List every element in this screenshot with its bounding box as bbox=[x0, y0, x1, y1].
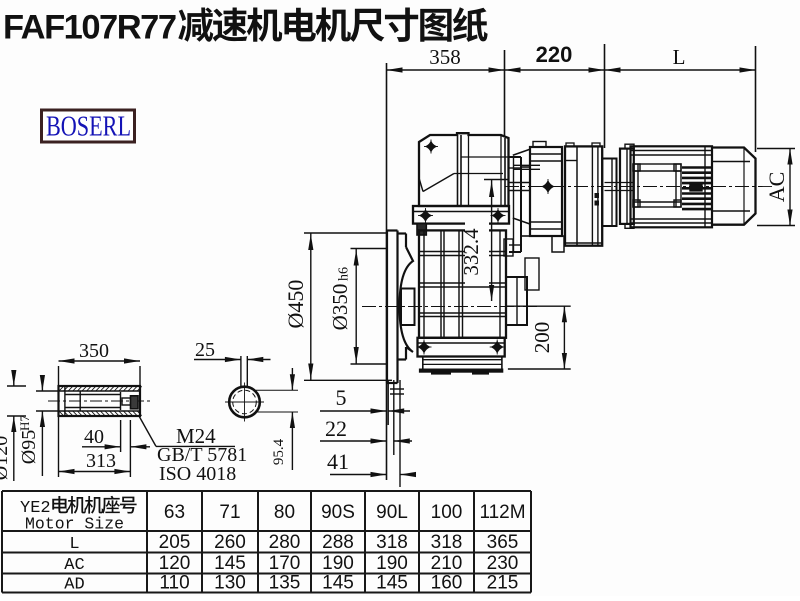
svg-text:358: 358 bbox=[429, 45, 461, 69]
svg-text:22: 22 bbox=[325, 416, 347, 441]
svg-text:90S: 90S bbox=[321, 502, 355, 523]
svg-text:110: 110 bbox=[159, 573, 189, 594]
svg-text:190: 190 bbox=[376, 553, 408, 574]
svg-text:AD: AD bbox=[64, 576, 84, 595]
svg-text:H7: H7 bbox=[17, 415, 32, 431]
svg-text:145: 145 bbox=[214, 553, 246, 574]
svg-text:135: 135 bbox=[269, 573, 301, 594]
svg-text:145: 145 bbox=[322, 573, 354, 594]
svg-text:130: 130 bbox=[214, 573, 246, 594]
svg-text:95.4: 95.4 bbox=[271, 438, 287, 465]
svg-text:AC: AC bbox=[64, 556, 84, 575]
svg-text:80: 80 bbox=[274, 502, 295, 523]
svg-text:220: 220 bbox=[536, 42, 573, 67]
svg-text:Ø350: Ø350 bbox=[328, 284, 352, 331]
svg-text:L: L bbox=[673, 45, 686, 69]
svg-text:332.4: 332.4 bbox=[459, 228, 483, 276]
svg-text:280: 280 bbox=[269, 532, 301, 553]
svg-text:200: 200 bbox=[530, 322, 554, 354]
svg-text:170: 170 bbox=[269, 553, 301, 574]
svg-text:145: 145 bbox=[376, 573, 408, 594]
svg-text:318: 318 bbox=[431, 532, 463, 553]
svg-text:318: 318 bbox=[376, 532, 408, 553]
svg-text:260: 260 bbox=[214, 532, 246, 553]
svg-text:5: 5 bbox=[336, 385, 347, 410]
svg-text:AC: AC bbox=[764, 172, 789, 203]
svg-text:112M: 112M bbox=[479, 502, 525, 523]
svg-text:Ø450: Ø450 bbox=[283, 280, 308, 329]
svg-text:63: 63 bbox=[164, 502, 185, 523]
svg-text:160: 160 bbox=[431, 573, 463, 594]
svg-text:230: 230 bbox=[487, 553, 519, 574]
svg-text:313: 313 bbox=[86, 450, 116, 472]
svg-text:215: 215 bbox=[487, 573, 519, 594]
svg-text:41: 41 bbox=[327, 449, 349, 474]
svg-text:365: 365 bbox=[487, 532, 519, 553]
svg-text:ISO 4018: ISO 4018 bbox=[159, 463, 236, 485]
svg-text:L: L bbox=[69, 535, 79, 554]
svg-text:210: 210 bbox=[431, 553, 463, 574]
svg-text:190: 190 bbox=[322, 553, 354, 574]
svg-text:Motor Size: Motor Size bbox=[25, 515, 124, 534]
svg-text:288: 288 bbox=[322, 532, 354, 553]
svg-text:25: 25 bbox=[195, 339, 215, 361]
svg-text:Ø120: Ø120 bbox=[0, 436, 12, 480]
svg-text:120: 120 bbox=[159, 553, 191, 574]
svg-text:100: 100 bbox=[431, 502, 463, 523]
svg-text:71: 71 bbox=[219, 502, 240, 523]
svg-text:350: 350 bbox=[79, 340, 109, 362]
svg-text:90L: 90L bbox=[376, 502, 408, 523]
svg-text:205: 205 bbox=[159, 532, 191, 553]
svg-text:40: 40 bbox=[84, 426, 104, 448]
svg-text:Ø95: Ø95 bbox=[18, 430, 40, 464]
svg-text:BOSERL: BOSERL bbox=[46, 112, 131, 143]
svg-text:h6: h6 bbox=[337, 267, 352, 281]
svg-text:FAF107R77: FAF107R77 bbox=[3, 9, 177, 47]
